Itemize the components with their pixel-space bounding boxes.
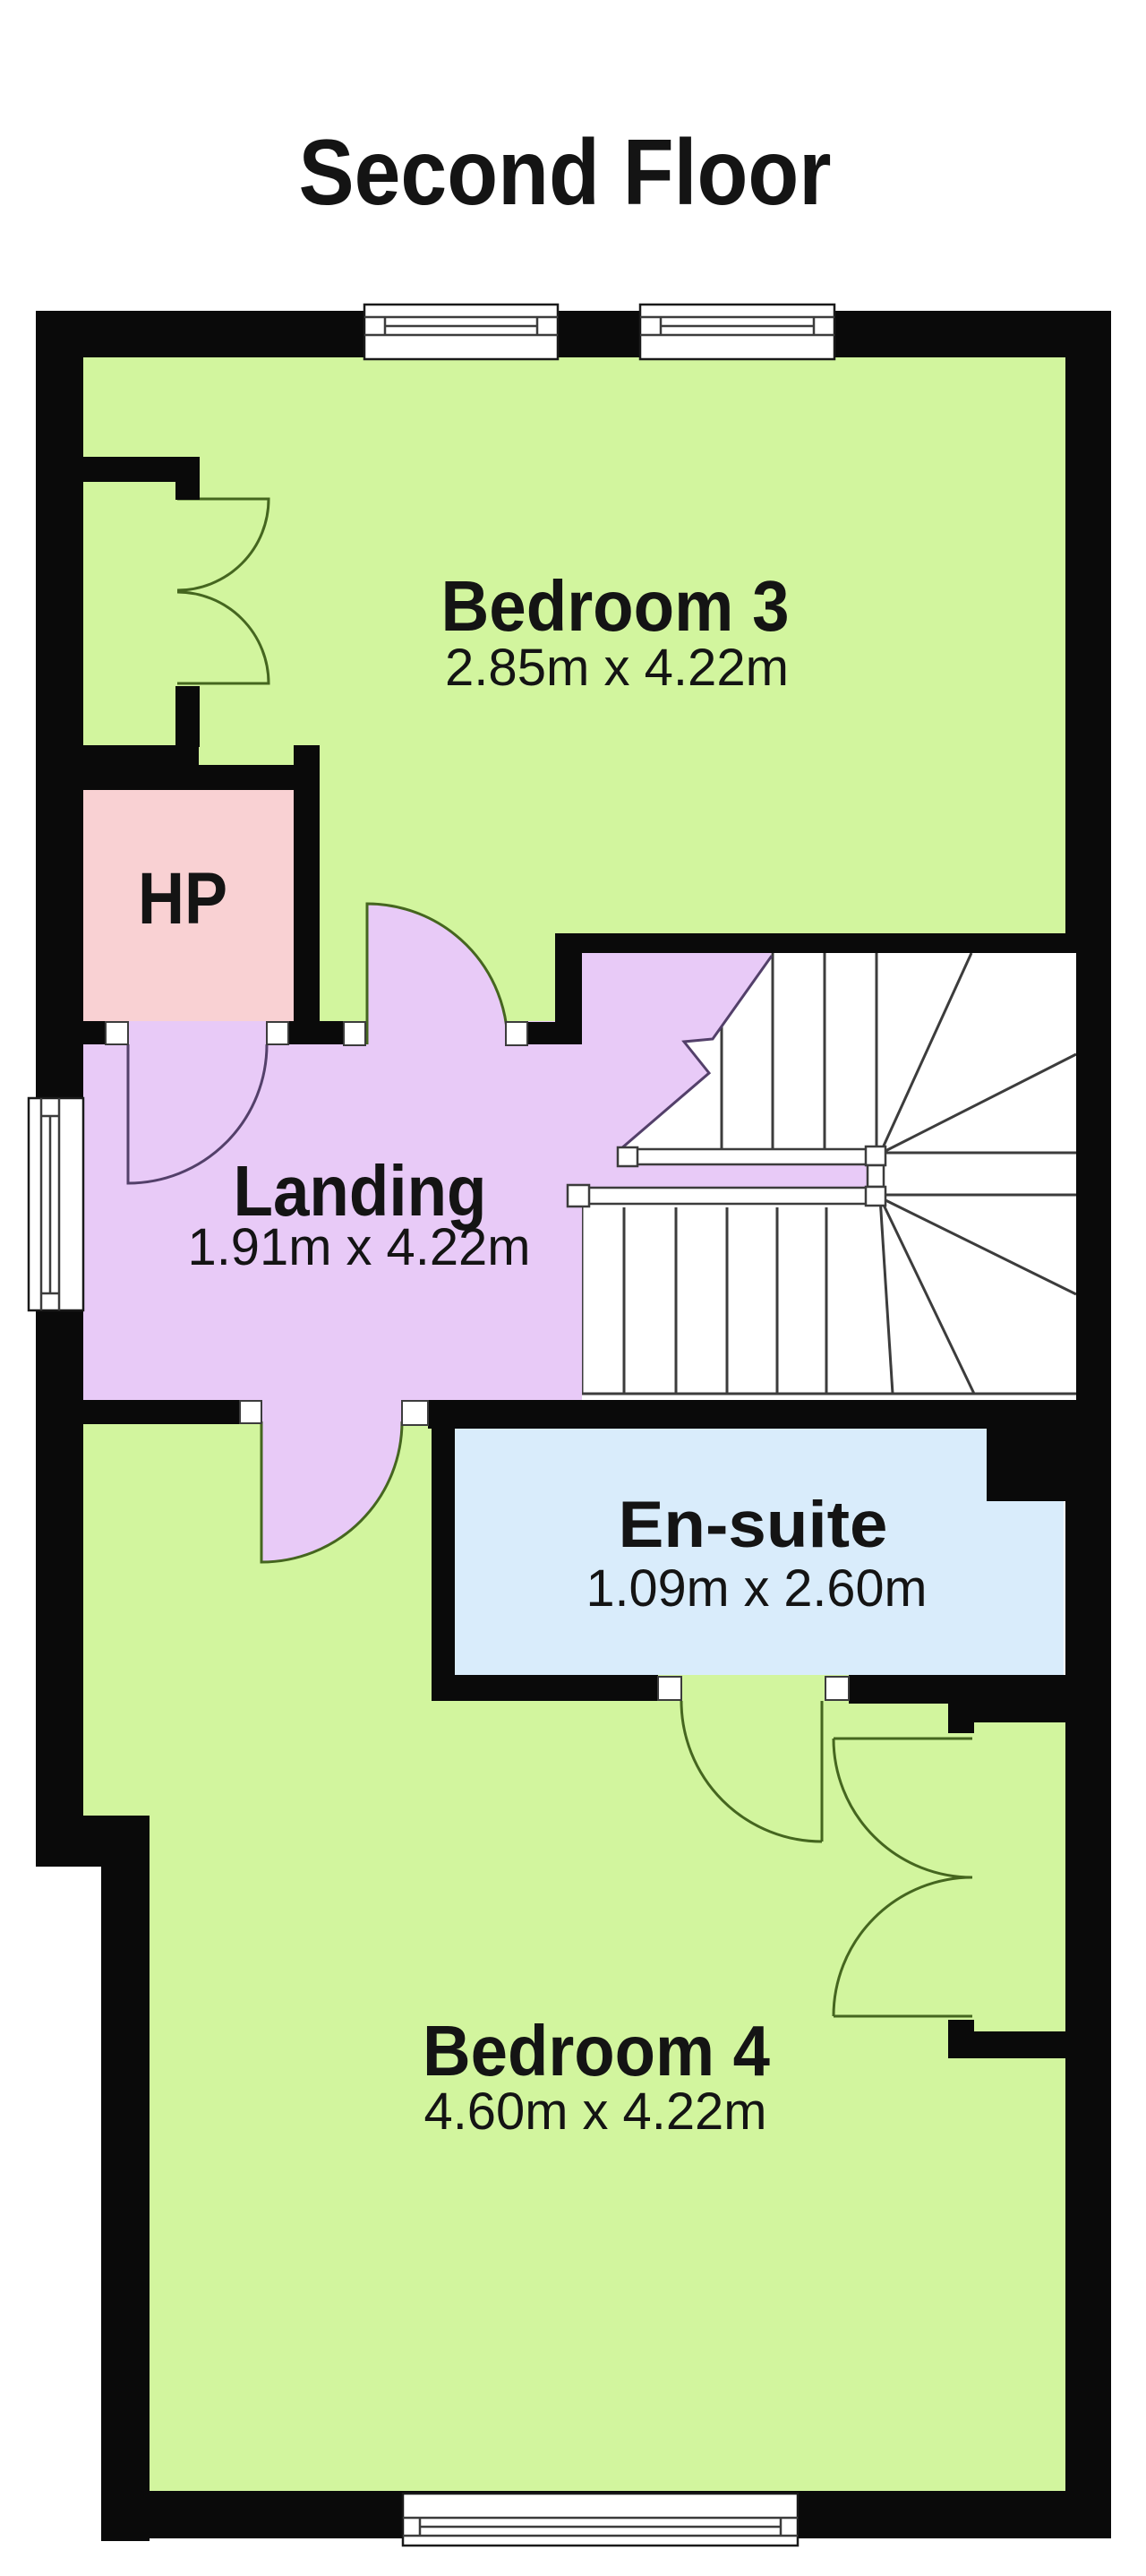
svg-text:Bedroom 3: Bedroom 3 [441, 566, 790, 646]
svg-text:Bedroom 4: Bedroom 4 [423, 2011, 770, 2091]
svg-text:Second Floor: Second Floor [299, 121, 832, 225]
svg-text:1.09m x 2.60m: 1.09m x 2.60m [586, 1559, 928, 1618]
svg-text:HP: HP [138, 858, 227, 940]
svg-text:2.85m x 4.22m: 2.85m x 4.22m [445, 639, 789, 697]
svg-text:1.91m x 4.22m: 1.91m x 4.22m [188, 1218, 531, 1276]
svg-text:4.60m x 4.22m: 4.60m x 4.22m [424, 2082, 767, 2141]
svg-text:En-suite: En-suite [619, 1489, 888, 1561]
